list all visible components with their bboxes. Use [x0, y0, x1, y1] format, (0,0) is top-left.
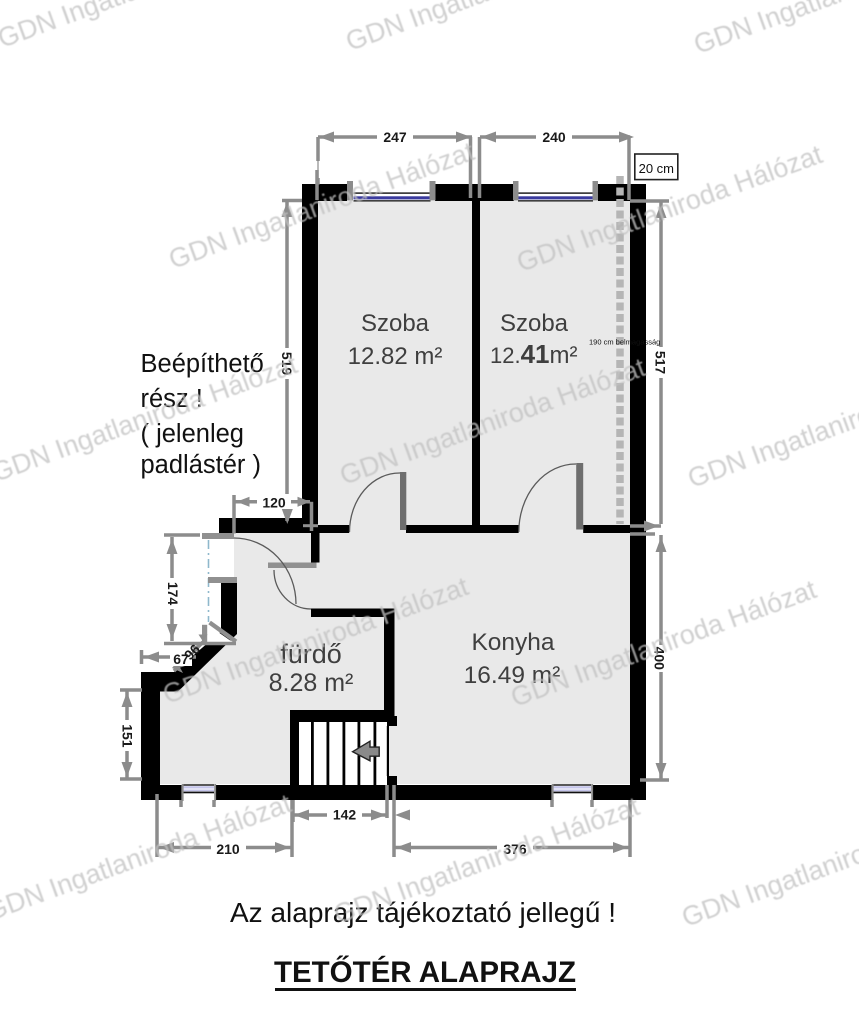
svg-text:20 cm: 20 cm [639, 161, 674, 176]
svg-text:GDN Ingatlaniroda Hálózat: GDN Ingatlaniroda Hálózat [342, 0, 656, 57]
svg-text:Szoba: Szoba [361, 310, 430, 337]
svg-text:Konyha: Konyha [471, 629, 554, 656]
svg-text:Szoba: Szoba [500, 310, 569, 337]
svg-text:GDN Ingatlaniroda Hálózat: GDN Ingatlaniroda Hálózat [684, 355, 859, 494]
svg-text:142: 142 [333, 807, 357, 823]
svg-text:padlástér ): padlástér ) [141, 451, 261, 479]
svg-text:517: 517 [653, 351, 669, 375]
svg-text:120: 120 [262, 495, 286, 511]
svg-text:GDN Ingatlaniroda Hálózat: GDN Ingatlaniroda Hálózat [0, 0, 308, 54]
svg-text:247: 247 [383, 129, 407, 145]
svg-text:TETŐTÉR ALAPRAJZ: TETŐTÉR ALAPRAJZ [274, 955, 576, 989]
svg-text:151: 151 [120, 724, 136, 748]
svg-text:GDN Ingatlaniroda Hálózat: GDN Ingatlaniroda Hálózat [678, 794, 859, 933]
svg-text:8.28 m²: 8.28 m² [269, 669, 354, 697]
svg-text:Az alaprajz tájékoztató jelleg: Az alaprajz tájékoztató jellegű ! [230, 897, 616, 928]
svg-text:GDN Ingatlaniroda Hálózat: GDN Ingatlaniroda Hálózat [690, 0, 859, 60]
svg-text:174: 174 [165, 582, 181, 606]
svg-text:190 cm belmagasság: 190 cm belmagasság [589, 338, 660, 347]
svg-text:240: 240 [542, 129, 566, 145]
svg-text:12.82 m²: 12.82 m² [348, 343, 443, 370]
svg-text:12.41m²: 12.41m² [490, 339, 578, 369]
